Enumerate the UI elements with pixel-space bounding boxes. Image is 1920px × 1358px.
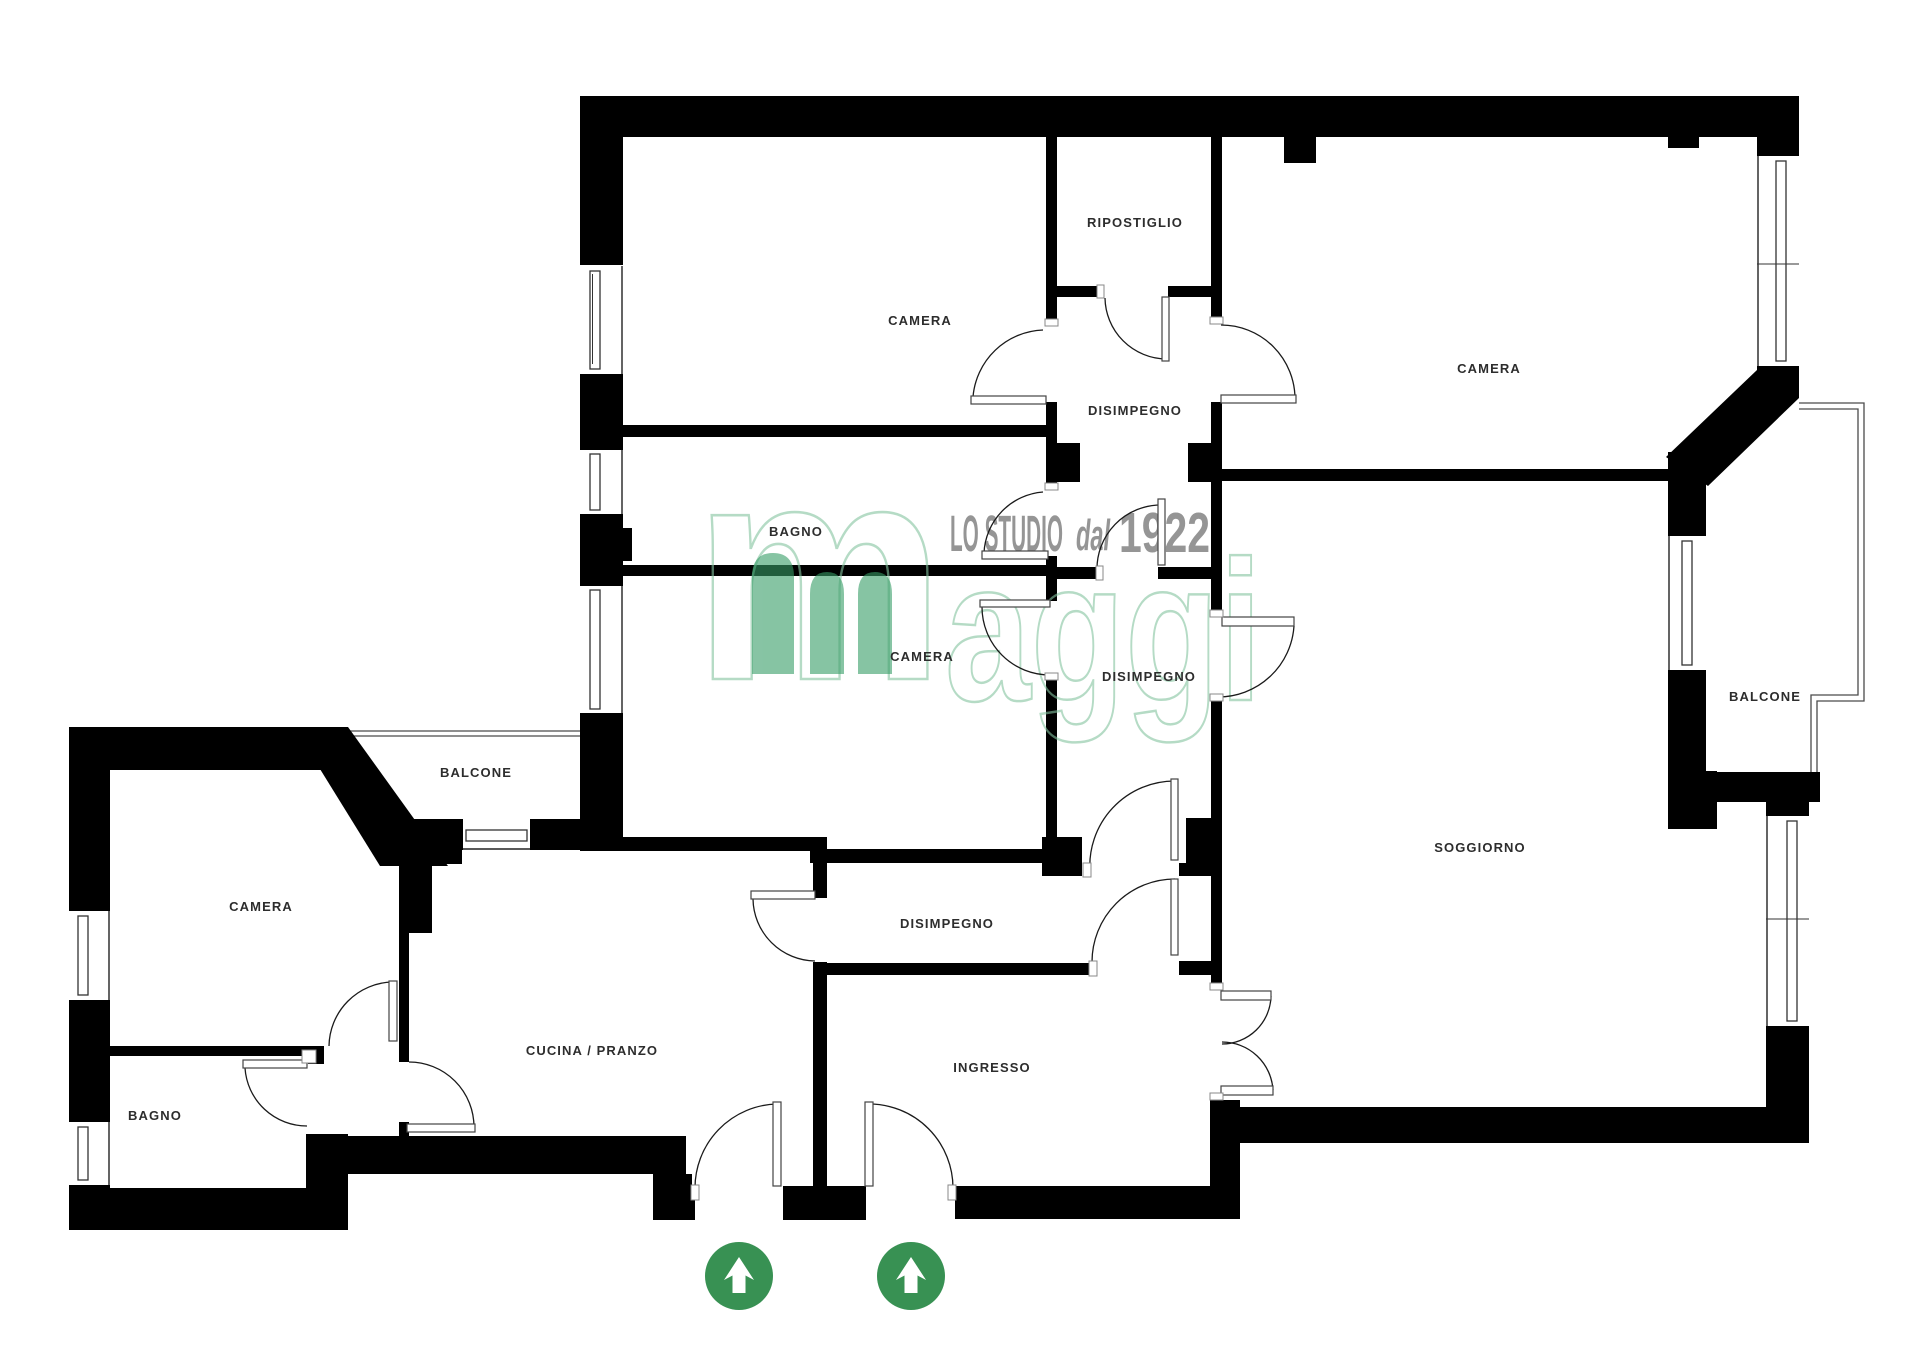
svg-text:DISIMPEGNO: DISIMPEGNO [1102, 669, 1196, 684]
svg-text:dal: dal [1076, 511, 1110, 560]
svg-text:CAMERA: CAMERA [1457, 361, 1521, 376]
svg-text:RIPOSTIGLIO: RIPOSTIGLIO [1087, 215, 1183, 230]
svg-text:INGRESSO: INGRESSO [953, 1060, 1030, 1075]
svg-text:CAMERA: CAMERA [890, 649, 954, 664]
svg-text:m: m [693, 398, 945, 745]
svg-text:BAGNO: BAGNO [128, 1108, 182, 1123]
svg-text:DISIMPEGNO: DISIMPEGNO [1088, 403, 1182, 418]
svg-text:DISIMPEGNO: DISIMPEGNO [900, 916, 994, 931]
svg-text:BALCONE: BALCONE [440, 765, 512, 780]
svg-text:CAMERA: CAMERA [888, 313, 952, 328]
svg-text:SOGGIORNO: SOGGIORNO [1434, 840, 1526, 855]
svg-text:BALCONE: BALCONE [1729, 689, 1801, 704]
svg-text:CUCINA / PRANZO: CUCINA / PRANZO [526, 1043, 658, 1058]
svg-text:CAMERA: CAMERA [229, 899, 293, 914]
svg-text:BAGNO: BAGNO [769, 524, 823, 539]
